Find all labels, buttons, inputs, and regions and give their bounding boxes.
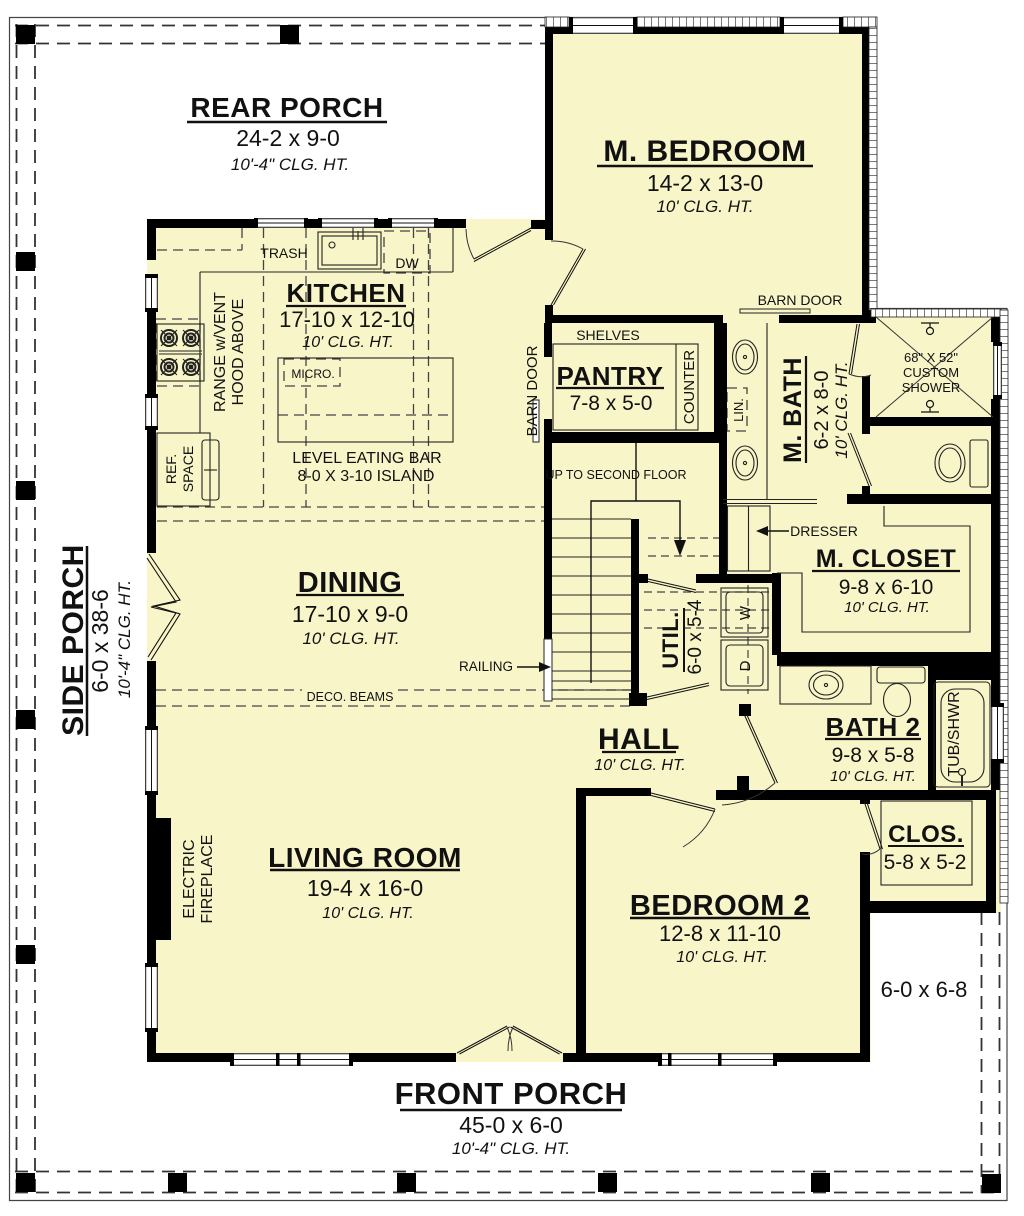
svg-text:10'-4" CLG. HT.: 10'-4" CLG. HT. — [231, 155, 349, 174]
svg-text:14-2 x 13-0: 14-2 x 13-0 — [647, 170, 763, 196]
svg-text:UTIL.: UTIL. — [658, 611, 683, 669]
svg-text:10' CLG. HT.: 10' CLG. HT. — [302, 334, 393, 351]
svg-text:10' CLG. HT.: 10' CLG. HT. — [594, 757, 685, 774]
svg-text:6-2 x 8-0: 6-2 x 8-0 — [811, 371, 833, 450]
svg-text:LEVEL EATING BAR: LEVEL EATING BAR — [292, 450, 441, 467]
svg-text:12-8 x 11-10: 12-8 x 11-10 — [659, 921, 781, 946]
svg-text:BARN DOOR: BARN DOOR — [524, 345, 541, 436]
svg-text:SPACE: SPACE — [180, 446, 196, 492]
svg-text:6-0 x 38-6: 6-0 x 38-6 — [87, 589, 113, 693]
svg-text:8-0 X 3-10 ISLAND: 8-0 X 3-10 ISLAND — [298, 468, 435, 485]
svg-text:SHELVES: SHELVES — [576, 327, 640, 343]
svg-text:COUNTER: COUNTER — [681, 350, 698, 424]
svg-text:MICRO.: MICRO. — [291, 367, 334, 381]
svg-text:RANGE w/VENT: RANGE w/VENT — [212, 292, 229, 412]
svg-text:10' CLG. HT.: 10' CLG. HT. — [830, 768, 916, 785]
svg-text:SIDE PORCH: SIDE PORCH — [57, 544, 90, 736]
svg-text:10' CLG. HT.: 10' CLG. HT. — [676, 949, 767, 966]
svg-text:TUB/SHWR: TUB/SHWR — [946, 691, 963, 776]
svg-text:LIN.: LIN. — [731, 398, 746, 422]
svg-text:DRESSER: DRESSER — [790, 523, 858, 539]
svg-text:17-10 x 9-0: 17-10 x 9-0 — [292, 601, 408, 627]
svg-text:BATH 2: BATH 2 — [826, 712, 921, 742]
svg-text:10' CLG. HT.: 10' CLG. HT. — [832, 361, 851, 458]
svg-text:6-0 x 6-8: 6-0 x 6-8 — [881, 977, 968, 1002]
svg-text:SHOWER: SHOWER — [902, 380, 961, 395]
svg-text:HOOD ABOVE: HOOD ABOVE — [230, 299, 247, 406]
svg-text:RAILING: RAILING — [459, 659, 513, 674]
svg-text:10'-4" CLG. HT.: 10'-4" CLG. HT. — [452, 1139, 570, 1158]
svg-text:19-4 x 16-0: 19-4 x 16-0 — [307, 875, 423, 901]
svg-text:CLOS.: CLOS. — [888, 821, 964, 848]
svg-text:DW: DW — [395, 255, 419, 271]
svg-text:9-8 x 5-8: 9-8 x 5-8 — [832, 744, 915, 767]
svg-text:7-8 x 5-0: 7-8 x 5-0 — [570, 392, 653, 415]
svg-text:17-10 x 12-10: 17-10 x 12-10 — [279, 307, 415, 332]
svg-text:10' CLG. HT.: 10' CLG. HT. — [844, 599, 930, 616]
svg-text:DECO. BEAMS: DECO. BEAMS — [307, 690, 394, 704]
svg-text:FIREPLACE: FIREPLACE — [199, 835, 216, 924]
svg-text:KITCHEN: KITCHEN — [286, 278, 405, 308]
svg-text:TRASH: TRASH — [260, 245, 307, 261]
svg-text:PANTRY: PANTRY — [557, 361, 664, 391]
svg-text:D: D — [737, 660, 754, 671]
svg-text:REAR PORCH: REAR PORCH — [190, 92, 383, 123]
svg-text:24-2 x 9-0: 24-2 x 9-0 — [236, 125, 340, 151]
svg-text:10' CLG. HT.: 10' CLG. HT. — [322, 905, 413, 922]
svg-text:45-0 x 6-0: 45-0 x 6-0 — [459, 1112, 563, 1138]
svg-text:LIVING ROOM: LIVING ROOM — [268, 842, 462, 873]
svg-text:BARN DOOR: BARN DOOR — [758, 292, 843, 308]
svg-text:9-8 x 6-10: 9-8 x 6-10 — [839, 576, 934, 599]
svg-text:REF.: REF. — [163, 454, 179, 484]
svg-text:W: W — [737, 605, 754, 620]
svg-text:10' CLG. HT.: 10' CLG. HT. — [302, 629, 399, 648]
svg-text:M. CLOSET: M. CLOSET — [816, 545, 957, 573]
svg-text:68" X 52": 68" X 52" — [904, 350, 958, 365]
svg-text:5-8 x 5-2: 5-8 x 5-2 — [884, 851, 967, 874]
svg-text:UP TO SECOND FLOOR: UP TO SECOND FLOOR — [545, 468, 686, 482]
svg-text:10' CLG. HT.: 10' CLG. HT. — [656, 197, 753, 216]
svg-text:10'-4" CLG. HT.: 10'-4" CLG. HT. — [115, 580, 134, 698]
svg-text:M. BEDROOM: M. BEDROOM — [603, 135, 806, 168]
svg-text:CUSTOM: CUSTOM — [903, 365, 959, 380]
svg-text:ELECTRIC: ELECTRIC — [181, 839, 198, 918]
svg-text:FRONT PORCH: FRONT PORCH — [395, 1076, 628, 1111]
svg-text:M. BATH: M. BATH — [779, 357, 807, 463]
svg-text:6-0 x 5-4: 6-0 x 5-4 — [685, 599, 706, 674]
